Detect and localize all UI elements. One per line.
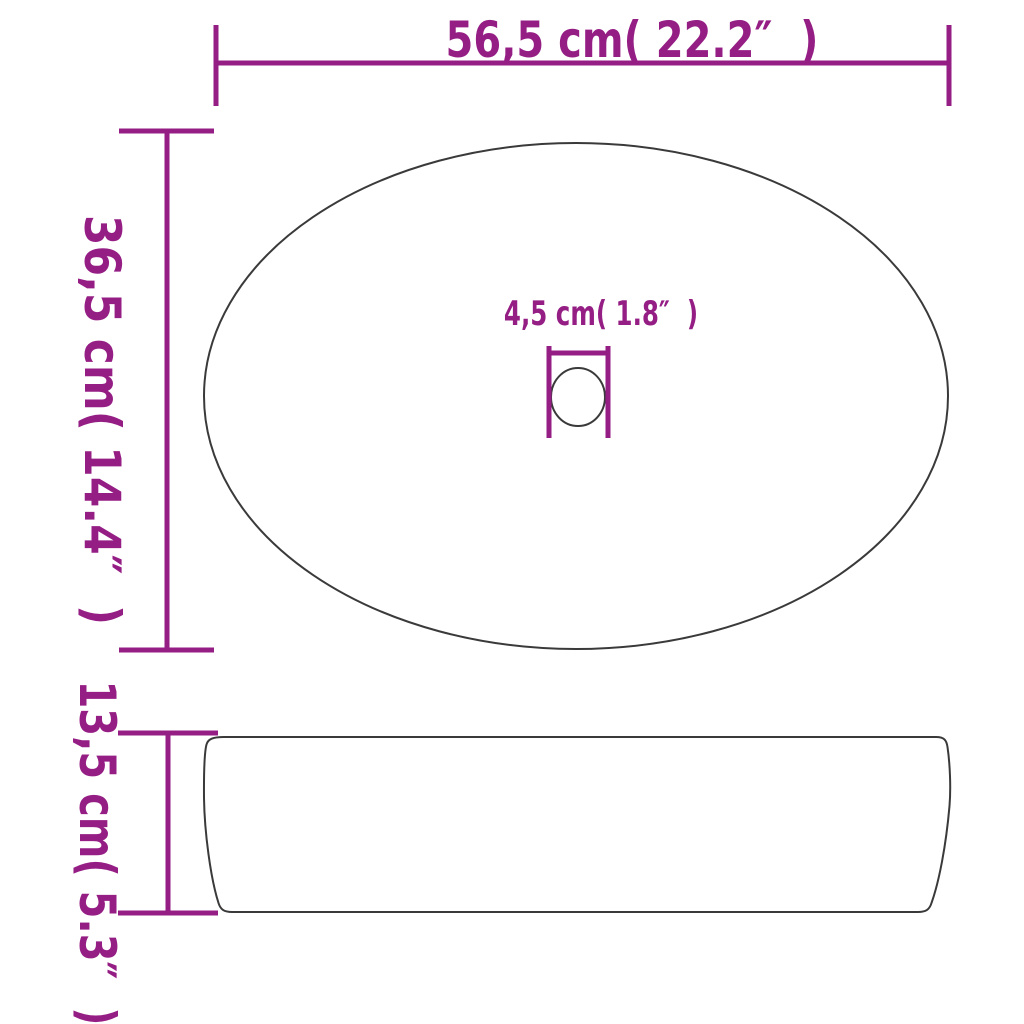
diagram-drawing [0, 0, 1024, 1024]
drain-diameter-label: 4,5 cm( 1.8″ ) [504, 297, 698, 331]
depth-dimension-label: 36,5 cm( 14.4″ ) [77, 215, 127, 625]
depth-dimension-line [119, 131, 214, 650]
product-outlines [204, 143, 950, 912]
height-dimension-label: 13,5 cm( 5.3″ ) [72, 680, 122, 1024]
basin-top-view-outline [204, 143, 948, 649]
drain-dimension-bracket [549, 346, 608, 438]
dimension-lines [118, 25, 949, 913]
width-dimension-label: 56,5 cm( 22.2″ ) [446, 15, 819, 65]
drain-hole-circle [551, 368, 605, 426]
height-dimension-line [118, 733, 218, 913]
dimension-diagram: 56,5 cm( 22.2″ ) 36,5 cm( 14.4″ ) 4,5 cm… [0, 0, 1024, 1024]
basin-side-view-outline [204, 737, 950, 912]
